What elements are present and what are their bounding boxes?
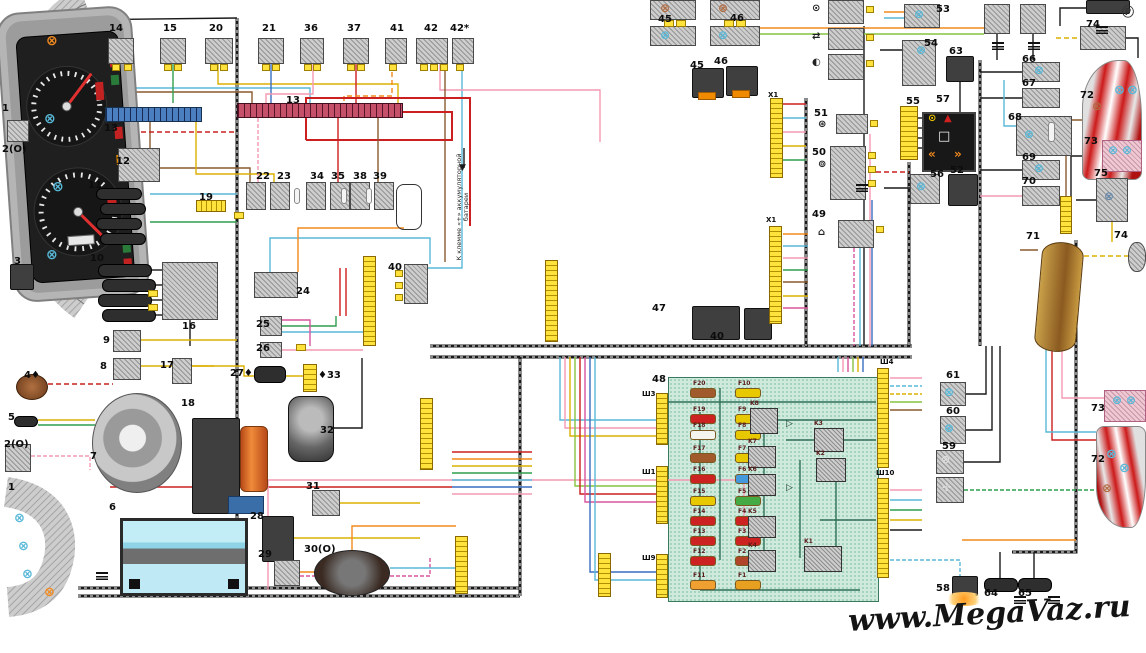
- wire: [150, 122, 250, 182]
- battery: [120, 518, 248, 596]
- wire: [1126, 38, 1138, 58]
- harness-bus: [1012, 240, 1076, 552]
- wire: [966, 346, 992, 430]
- wire: [565, 357, 656, 428]
- battery-terminal-negative: [129, 579, 140, 589]
- odometer: [68, 235, 95, 246]
- wire: [440, 64, 600, 142]
- wire: [298, 228, 404, 272]
- wire: [1066, 120, 1082, 196]
- wire: [1060, 8, 1086, 26]
- wire: [966, 346, 986, 394]
- battery-terminal-positive: [228, 579, 239, 589]
- wire: [1004, 80, 1016, 126]
- wire: [890, 560, 960, 576]
- wire: [580, 357, 656, 494]
- wiring-diagram: F20F10F19F9F18F8F17F7F16F6F15F5F14F4F13F…: [0, 0, 1146, 653]
- wire: [575, 357, 656, 486]
- wire: [1052, 346, 1096, 440]
- wire: [595, 357, 656, 580]
- battery-plus-note: К клемме «+» аккумуляторной батареи: [456, 148, 470, 266]
- wire: [334, 358, 362, 428]
- wire: [590, 357, 656, 572]
- wire: [31, 456, 90, 470]
- wire: [196, 122, 274, 182]
- wire: [268, 480, 744, 590]
- wire: [270, 238, 430, 272]
- wire: [300, 556, 430, 576]
- wire: [306, 112, 452, 140]
- wire: [282, 316, 336, 326]
- harness-bus-hatch: [1012, 240, 1076, 552]
- wire: [1046, 346, 1096, 432]
- instrument-cluster: [0, 0, 158, 311]
- wire: [1071, 156, 1102, 196]
- wire: [1062, 346, 1104, 398]
- wire: [570, 357, 656, 436]
- wire: [964, 346, 1000, 462]
- wire: [282, 320, 310, 346]
- wire: [192, 366, 303, 376]
